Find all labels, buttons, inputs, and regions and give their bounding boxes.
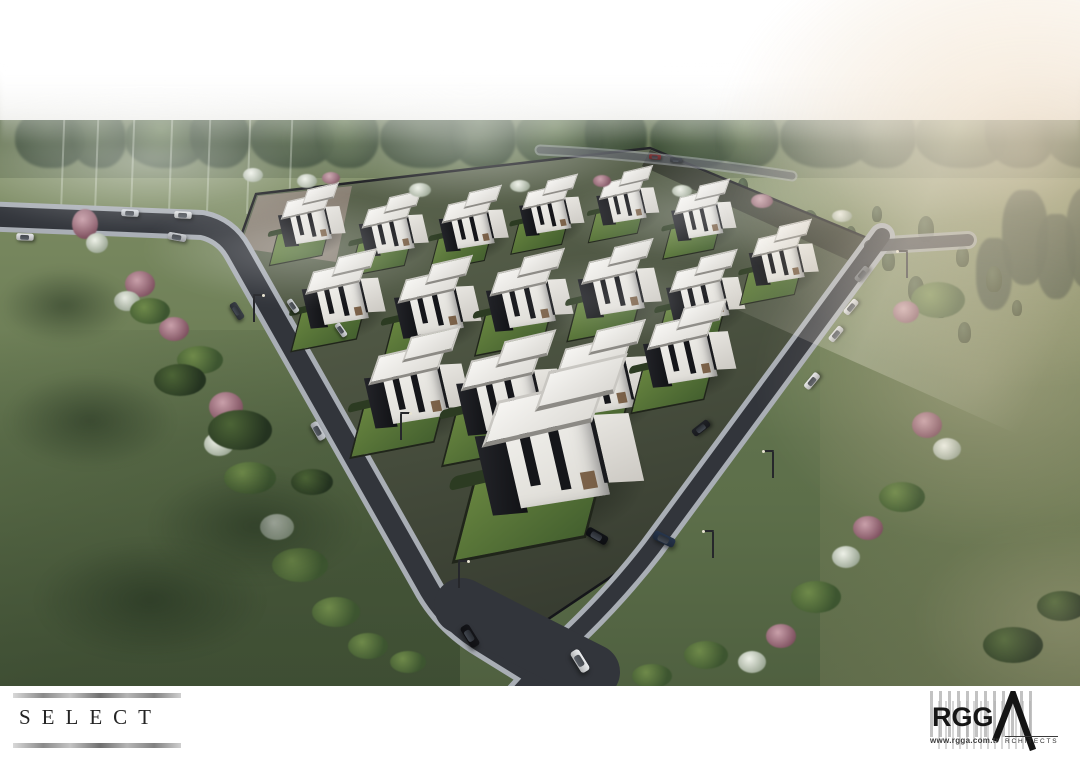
aerial-render-scene bbox=[0, 0, 1080, 686]
bush-green bbox=[632, 664, 672, 686]
street-lamp-arm bbox=[400, 412, 411, 414]
facade-window-slot bbox=[546, 424, 571, 491]
bush-white bbox=[738, 651, 766, 673]
bush-green bbox=[348, 633, 388, 659]
bush-white bbox=[832, 546, 860, 568]
bush-green bbox=[390, 651, 426, 673]
lit-window bbox=[482, 233, 490, 241]
select-logo-bottom-bar bbox=[13, 743, 181, 748]
fog-patch bbox=[140, 195, 460, 305]
select-logo-text: SELECT bbox=[19, 705, 187, 730]
rgga-architects-logo: RGG www.rgga.com.tr RCHITECTS bbox=[926, 689, 1058, 757]
facade-window-slot bbox=[468, 214, 478, 242]
rgga-logo-name: RGG bbox=[932, 702, 994, 733]
tree-shadow bbox=[5, 373, 175, 468]
facade-window-slot bbox=[683, 337, 697, 374]
lit-window bbox=[580, 470, 598, 489]
bush-green bbox=[684, 641, 728, 669]
select-project-logo: SELECT bbox=[13, 693, 181, 751]
select-logo-top-bar bbox=[13, 693, 181, 698]
bush-green bbox=[130, 298, 170, 324]
rgga-architects-label: RCHITECTS bbox=[1005, 736, 1058, 745]
lit-window bbox=[431, 400, 443, 412]
street-lamp bbox=[400, 414, 402, 440]
lit-window bbox=[701, 363, 711, 374]
lit-window bbox=[448, 315, 457, 325]
bush-pink bbox=[766, 624, 796, 648]
street-lamp bbox=[712, 532, 714, 558]
street-lamp-arm bbox=[703, 530, 714, 532]
rgga-website-url: www.rgga.com.tr bbox=[930, 736, 999, 745]
street-lamp-arm bbox=[458, 560, 469, 562]
footer-band: SELECT RGG www.rgga.com.tr RCHITECTS bbox=[0, 686, 1080, 763]
tree-shadow bbox=[35, 540, 265, 660]
tree-shadow bbox=[0, 268, 130, 343]
facade-window-slot bbox=[431, 291, 444, 325]
lit-window bbox=[354, 306, 363, 316]
car bbox=[16, 233, 34, 241]
facade-window-slot bbox=[409, 370, 425, 412]
bush-green bbox=[791, 581, 841, 613]
bush-dark bbox=[154, 364, 206, 396]
bush-pink bbox=[159, 317, 189, 341]
car-windshield bbox=[20, 234, 29, 239]
bush-green bbox=[312, 597, 360, 627]
architectural-render-page: SELECT RGG www.rgga.com.tr RCHITECTS bbox=[0, 0, 1080, 763]
bush-white bbox=[86, 233, 108, 253]
street-lamp bbox=[458, 562, 460, 588]
bush-dark bbox=[208, 410, 272, 450]
